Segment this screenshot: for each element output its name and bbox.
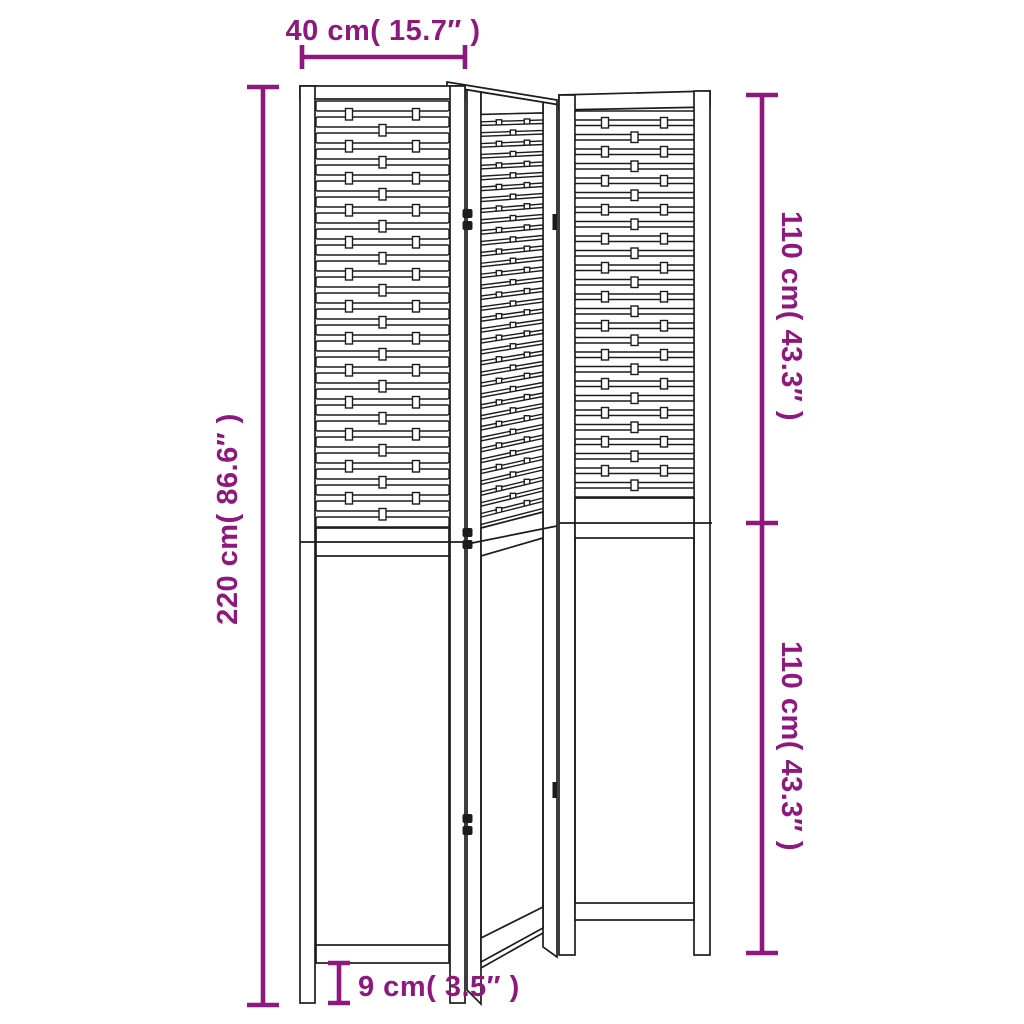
weave-strip — [346, 365, 353, 377]
weave-strip — [413, 493, 420, 505]
weave-strip — [602, 118, 609, 129]
weave-strip — [379, 317, 386, 329]
weave-strip — [346, 109, 353, 121]
weave-strip — [631, 451, 638, 462]
panel-right-bottom-rail — [575, 903, 694, 920]
weave-strip — [379, 157, 386, 169]
panel-middle-weave — [481, 113, 543, 524]
weave-strip — [413, 365, 420, 377]
room-divider-dimension-diagram: 40 cm( 15.7″ ) 220 cm( 86.6″ ) 110 cm( 4… — [0, 0, 1024, 1024]
weave-strip — [346, 141, 353, 153]
weave-strip — [602, 437, 609, 448]
weave-strip — [631, 190, 638, 201]
panel-left-weave — [316, 101, 449, 527]
weave-slat — [316, 101, 449, 111]
weave-strip — [413, 237, 420, 249]
weave-band — [481, 134, 543, 144]
room-divider-drawing — [300, 82, 712, 1004]
dimension-leg-height: 9 cm( 3.5″ ) — [328, 963, 520, 1003]
weave-band — [481, 113, 543, 122]
weave-strip — [379, 381, 386, 393]
weave-strip — [631, 277, 638, 288]
weave-strip — [631, 480, 638, 491]
weave-strip — [379, 349, 386, 361]
weave-strip — [346, 397, 353, 409]
weave-strip — [602, 350, 609, 361]
weave-band — [481, 197, 543, 209]
panel-right — [559, 91, 712, 955]
panel-left-left-stile — [300, 86, 315, 1003]
panel-right-mid-rail — [575, 498, 694, 538]
weave-strip — [661, 466, 668, 477]
panel-right-left-stile — [559, 95, 575, 955]
weave-strip — [346, 269, 353, 281]
weave-strip — [346, 237, 353, 249]
dimension-label-panel-width: 40 cm( 15.7″ ) — [286, 15, 481, 47]
weave-strip — [602, 263, 609, 274]
weave-strip — [661, 437, 668, 448]
weave-strip — [413, 301, 420, 313]
panel-left-bottom-rail — [316, 945, 449, 963]
panel-right-top-rail — [559, 91, 710, 110]
weave-strip — [379, 509, 386, 521]
weave-strip — [413, 205, 420, 217]
weave-strip — [661, 147, 668, 158]
weave-strip — [661, 379, 668, 390]
weave-strip — [661, 321, 668, 332]
dimension-panel-width: 40 cm( 15.7″ ) — [286, 15, 481, 69]
weave-strip — [631, 219, 638, 230]
weave-strip — [631, 248, 638, 259]
weave-strip — [346, 493, 353, 505]
weave-strip — [413, 397, 420, 409]
weave-strip — [631, 132, 638, 143]
weave-strip — [346, 429, 353, 441]
weave-strip — [346, 205, 353, 217]
weave-strip — [379, 445, 386, 457]
panel-left-top-rail — [300, 86, 465, 99]
weave-strip — [631, 306, 638, 317]
weave-strip — [661, 350, 668, 361]
panel-left — [300, 86, 465, 1003]
weave-strip — [379, 125, 386, 137]
panel-middle-right-stile — [543, 102, 557, 957]
dimension-upper-section: 110 cm( 43.3″ ) 110 cm( 43.3″ ) — [746, 95, 807, 953]
weave-strip — [379, 189, 386, 201]
weave-strip — [413, 269, 420, 281]
hinge-edge-icon — [553, 782, 558, 798]
weave-strip — [413, 333, 420, 345]
dimension-label-upper-section: 110 cm( 43.3″ ) — [775, 211, 807, 421]
weave-strip — [631, 393, 638, 404]
weave-strip — [661, 118, 668, 129]
weave-strip — [346, 461, 353, 473]
weave-band — [481, 155, 543, 165]
product-dimension-image: 40 cm( 15.7″ ) 220 cm( 86.6″ ) 110 cm( 4… — [0, 0, 1024, 1024]
weave-strip — [413, 429, 420, 441]
weave-strip — [661, 408, 668, 419]
weave-strip — [379, 285, 386, 297]
weave-strip — [602, 408, 609, 419]
weave-strip — [661, 234, 668, 245]
weave-strip — [602, 205, 609, 216]
weave-strip — [379, 413, 386, 425]
weave-strip — [661, 263, 668, 274]
weave-strip — [602, 147, 609, 158]
weave-strip — [602, 466, 609, 477]
weave-strip — [413, 141, 420, 153]
weave-strip — [346, 301, 353, 313]
weave-strip — [346, 333, 353, 345]
dimension-total-height: 220 cm( 86.6″ ) — [212, 87, 279, 1005]
weave-strip — [602, 379, 609, 390]
weave-strip — [413, 461, 420, 473]
dimension-label-total-height: 220 cm( 86.6″ ) — [212, 413, 244, 625]
weave-strip — [379, 253, 386, 265]
weave-strip — [631, 364, 638, 375]
weave-strip — [379, 477, 386, 489]
weave-strip — [631, 161, 638, 172]
weave-strip — [602, 176, 609, 187]
dimension-label-leg-height: 9 cm( 3.5″ ) — [358, 971, 520, 1003]
panel-right-weave — [575, 111, 694, 497]
weave-slat — [575, 111, 694, 120]
weave-strip — [602, 321, 609, 332]
weave-strip — [631, 335, 638, 346]
weave-strip — [602, 234, 609, 245]
weave-strip — [346, 173, 353, 185]
weave-strip — [413, 109, 420, 121]
panel-middle-bottom-rail — [481, 907, 543, 962]
weave-strip — [661, 292, 668, 303]
weave-strip — [413, 173, 420, 185]
hinge-edge-icon — [553, 214, 558, 230]
weave-band — [481, 176, 543, 187]
weave-strip — [379, 221, 386, 233]
weave-strip — [602, 292, 609, 303]
dimension-label-lower-section: 110 cm( 43.3″ ) — [775, 641, 807, 851]
weave-strip — [661, 176, 668, 187]
weave-strip — [631, 422, 638, 433]
weave-strip — [661, 205, 668, 216]
